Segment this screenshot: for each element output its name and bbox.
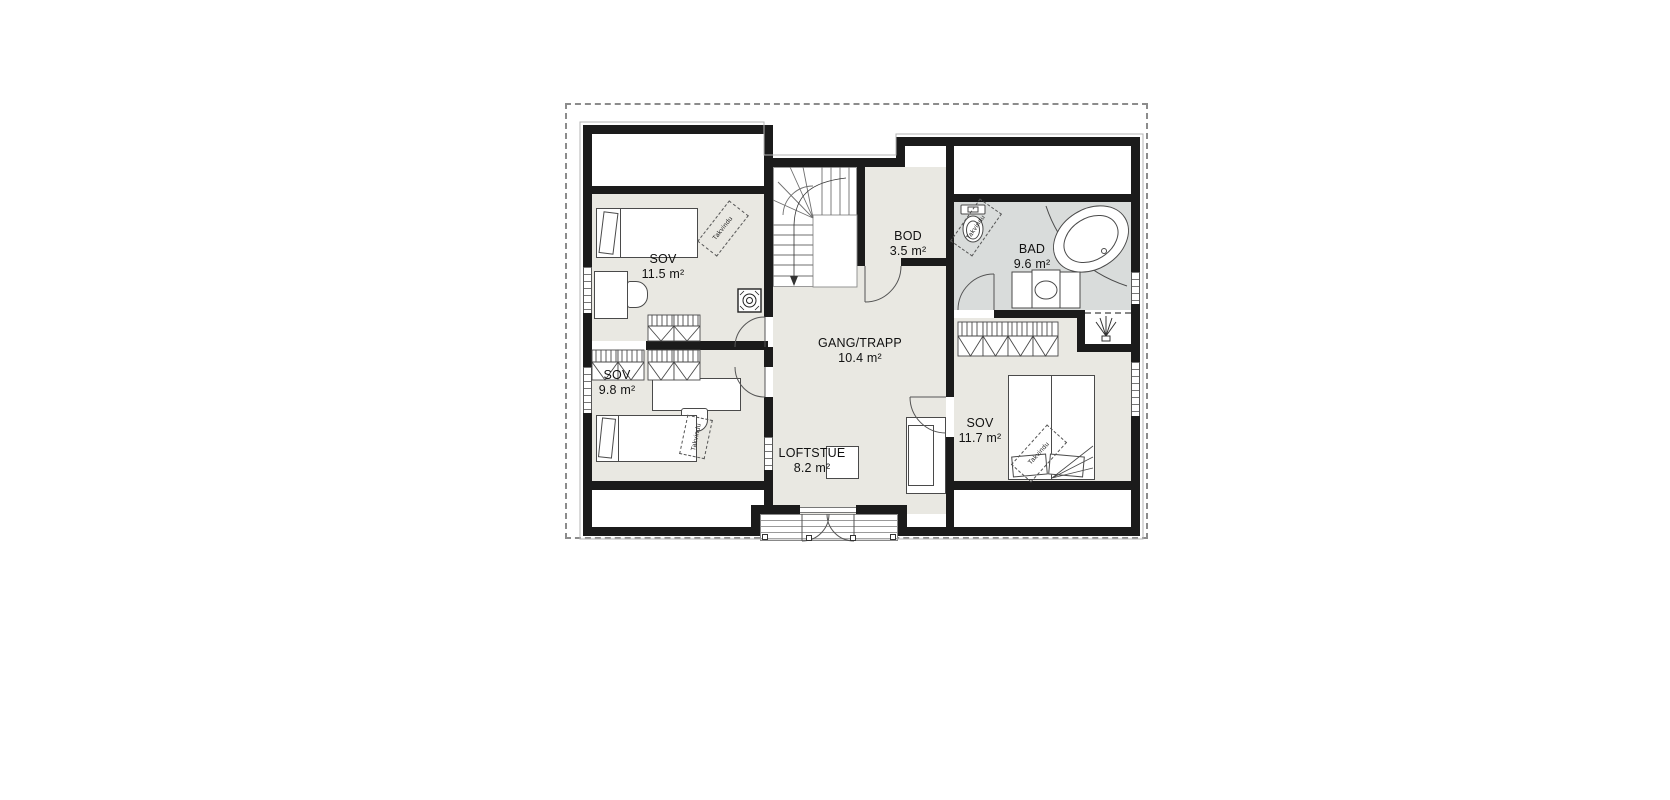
wall-right (1131, 137, 1140, 536)
wall-sov2-south (592, 481, 765, 490)
wall-top-left (583, 125, 772, 134)
room-area: 10.4 m² (785, 351, 935, 366)
skylight-label: Takvindu (712, 215, 735, 241)
room-label-sov2: SOV 9.8 m² (567, 368, 667, 398)
wall-top-right (896, 137, 1140, 146)
window-bad (1131, 272, 1140, 304)
room-name: SOV (567, 368, 667, 383)
room-area: 11.5 m² (613, 267, 713, 282)
wall-bottom-right (898, 527, 1140, 536)
balcony-post (850, 535, 856, 541)
room-area: 3.5 m² (858, 244, 958, 259)
room-area: 9.8 m² (567, 383, 667, 398)
room-area: 8.2 m² (737, 461, 887, 476)
wall-top-middle (764, 158, 905, 167)
stairwell (773, 167, 857, 287)
room-area: 11.7 m² (930, 431, 1030, 446)
balcony-door-sill (800, 507, 856, 513)
wall-sov3-south (954, 481, 1131, 490)
wall-bottom-left (583, 527, 760, 536)
wall-hall-west-a (764, 167, 773, 317)
room-name: SOV (930, 416, 1030, 431)
balcony-post (806, 535, 812, 541)
floor-plan-canvas: Takvindu Takvindu Takvindu Takvindu (0, 0, 1670, 800)
wall-hall-west-b (764, 347, 773, 367)
wall-niche-south (1077, 344, 1131, 352)
window-sov3 (1131, 362, 1140, 416)
bed-divider-line (618, 415, 619, 462)
room-name: GANG/TRAPP (785, 336, 935, 351)
room-label-sov3: SOV 11.7 m² (930, 416, 1030, 446)
knee-wall-sov1 (592, 186, 765, 194)
window-sov1 (583, 267, 592, 313)
skylight-label: Takvindu (965, 214, 987, 241)
wall-left (583, 125, 592, 536)
knee-wall-bad (946, 194, 1131, 202)
balcony-deck (760, 514, 898, 541)
room-name: SOV (613, 252, 713, 267)
niche-open-side-dashed (1085, 312, 1131, 314)
wall-bod-south (901, 258, 946, 266)
wall-loftstue-outer-right (856, 505, 907, 514)
room-name: BOD (858, 229, 958, 244)
room-area: 9.6 m² (982, 257, 1082, 272)
room-label-bod: BOD 3.5 m² (858, 229, 958, 259)
wall-sov1-sov2-divider (646, 341, 768, 350)
room-name: LOFTSTUE (737, 446, 887, 461)
wall-center-vertical-south (946, 437, 954, 536)
niche-floor (1085, 314, 1131, 344)
room-name: BAD (982, 242, 1082, 257)
balcony-post (890, 534, 896, 540)
skylight-label: Takvindu (1027, 441, 1051, 467)
room-label-gang: GANG/TRAPP 10.4 m² (785, 336, 935, 366)
wall-bad-south (994, 310, 1078, 318)
room-label-loftstue: LOFTSTUE 8.2 m² (737, 446, 887, 476)
skylight-label: Takvindu (690, 423, 703, 452)
wall-loftstue-outer-left (751, 505, 800, 514)
wall-center-vertical-north (946, 146, 954, 397)
room-label-bad: BAD 9.6 m² (982, 242, 1082, 272)
balcony-post (762, 534, 768, 540)
chair-sov1 (627, 281, 648, 308)
room-label-sov1: SOV 11.5 m² (613, 252, 713, 282)
bed-divider-line (620, 208, 621, 258)
